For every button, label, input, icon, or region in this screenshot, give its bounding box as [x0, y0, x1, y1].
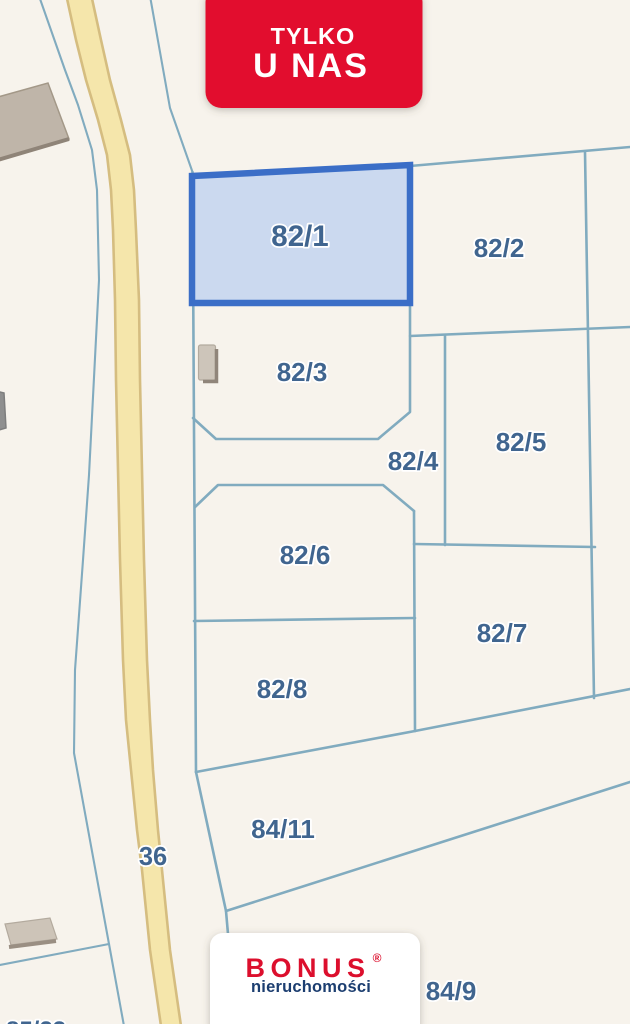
svg-text:82/8: 82/8	[257, 674, 308, 704]
svg-text:nieruchomości: nieruchomości	[251, 978, 371, 996]
svg-text:®: ®	[373, 951, 382, 965]
svg-text:82/5: 82/5	[496, 427, 547, 457]
svg-text:82/7: 82/7	[477, 618, 528, 648]
svg-text:82/2: 82/2	[474, 233, 525, 263]
svg-text:84/11: 84/11	[251, 814, 315, 844]
svg-text:U NAS: U NAS	[253, 47, 369, 85]
svg-text:82/1: 82/1	[271, 220, 328, 253]
svg-text:82/3: 82/3	[277, 357, 328, 387]
svg-text:82/4: 82/4	[388, 446, 439, 476]
svg-text:85/23: 85/23	[6, 1017, 66, 1024]
svg-text:36: 36	[139, 843, 167, 871]
svg-text:82/6: 82/6	[280, 540, 331, 570]
svg-text:84/9: 84/9	[426, 976, 477, 1006]
svg-text:TYLKO: TYLKO	[271, 23, 356, 49]
